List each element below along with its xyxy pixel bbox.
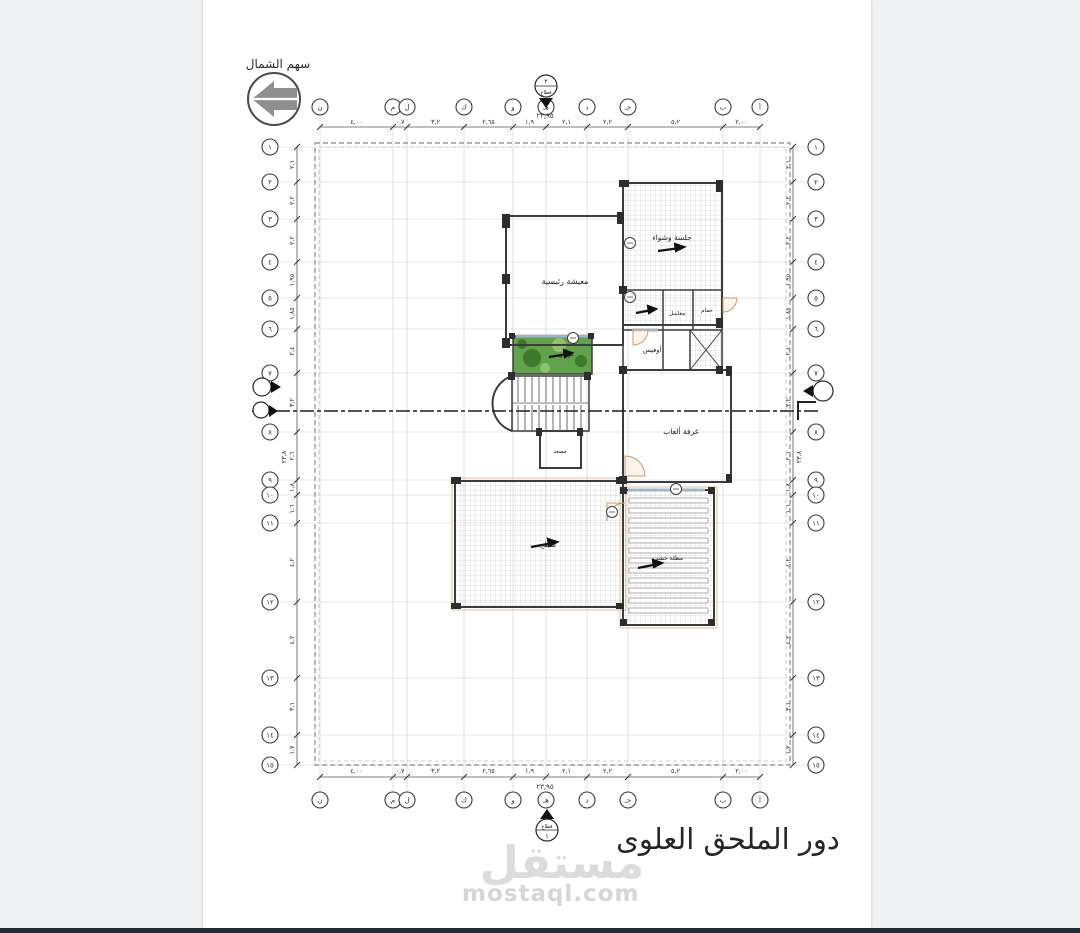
grid-bubble-label: ٦: [268, 326, 272, 334]
grid-bubble-label: ١٢: [266, 599, 274, 607]
grid-bubble-label: ك: [461, 104, 467, 112]
dim-text: ٠,٧: [395, 767, 405, 775]
dim-text: ٢,١: [562, 118, 571, 126]
dim-text: ٣,٢: [288, 397, 296, 407]
terrace-garden: [513, 336, 592, 374]
dim-text: ٤,٠٠: [350, 118, 363, 126]
dim-text: ٢,٦٥: [482, 767, 495, 775]
grid-bubble-label: أ: [759, 103, 761, 112]
grid-bubble-label: ١٠: [812, 492, 820, 500]
dim-text: ٤,٢: [288, 635, 296, 645]
dim-text: ٢,٠٠: [735, 767, 748, 775]
grid-bubble-label: ك: [461, 797, 467, 805]
stair-well: [512, 376, 589, 431]
north-arrow-label: سهم الشمال: [246, 57, 310, 71]
floor-plan-svg: نن٤,٠٠٤,٠٠مم٠,٧٠,٧لل٣,٢٣,٢كك٢,٦٥٢,٦٥وو١,…: [0, 0, 1080, 933]
grid-bubble-label: ٩: [814, 477, 818, 485]
dim-text: ٢,١: [288, 160, 296, 169]
dim-text: ٢,١: [784, 160, 792, 169]
dim-text: ٥,٢: [671, 118, 681, 126]
dim-text: ٤,٢: [288, 557, 296, 567]
grid-bubble-label: ٤: [268, 259, 272, 267]
dim-text: ٢,٢: [784, 235, 792, 245]
grid-bubble-label: ٥: [268, 295, 272, 303]
dim-text: ٣,٢: [431, 767, 441, 775]
room-label-office: أوفيس: [643, 345, 661, 354]
total-dim-left: ٢٣,٨: [280, 450, 288, 463]
dim-text: ١,٧: [784, 745, 792, 755]
room-label-roof: سطح: [540, 541, 556, 549]
grid-bubble-label: هـ: [542, 797, 549, 805]
dim-text: ١,٩٥: [288, 273, 296, 286]
grid-bubble-label: ١٤: [812, 732, 820, 740]
grid-bubble-label: ن: [317, 797, 322, 805]
grid-bubble-label: ن: [317, 104, 322, 112]
dim-text: ٤,٠٠: [350, 767, 363, 775]
grid-bubble-label: ١: [814, 144, 818, 152]
grid-bubble-label: ب: [720, 797, 727, 805]
dim-text: ١,٧: [288, 745, 296, 755]
dim-text: ٢,١: [562, 767, 571, 775]
grid-bubble-label: ١٠: [266, 492, 274, 500]
section-marker-bottom: قطاع ١: [536, 809, 558, 841]
grid-bubble-label: ٧: [814, 370, 818, 378]
dim-text: ٢,٢: [603, 767, 613, 775]
grid-bubble-label: جـ: [624, 104, 631, 112]
dim-text: ١,٦: [784, 504, 792, 514]
dim-text: ١,٨٥: [784, 307, 792, 320]
grid-bubble-label: أ: [759, 796, 761, 805]
dim-text: ٢,٢: [603, 118, 613, 126]
grid-bubble-label: جـ: [624, 797, 631, 805]
grid-bubble-label: ١٣: [266, 675, 274, 683]
dim-text: ٣,٢: [431, 118, 441, 126]
grid-bubble-label: ١٢: [812, 599, 820, 607]
room-label-elevator: مصعد: [553, 449, 566, 455]
grid-bubble-label: ١: [268, 144, 272, 152]
grid-bubble-label: م: [391, 797, 395, 805]
room-label-games: غرفة ألعاب: [663, 426, 698, 436]
dim-text: ٢,٦٥: [482, 118, 495, 126]
dim-text: ٤,٢: [784, 557, 792, 567]
north-arrow: سهم الشمال: [246, 57, 310, 125]
section-top-number: ٢: [544, 78, 548, 86]
grid-bubble-label: ٨: [814, 429, 818, 437]
grid-bubble-label: ٧: [268, 370, 272, 378]
structural-grid: نن٤,٠٠٤,٠٠مم٠,٧٠,٧لل٣,٢٣,٢كك٢,٦٥٢,٦٥وو١,…: [262, 99, 824, 808]
grid-bubble-label: ٤: [814, 259, 818, 267]
room-label-pergola: مظلة خشب: [653, 555, 683, 562]
bbq-hatch: [623, 183, 722, 325]
room-label-bath: حمام: [701, 308, 713, 314]
dim-text: ٢,٦: [784, 451, 792, 461]
dim-text: ٤,٢: [784, 635, 792, 645]
section-bottom-number: ١: [545, 833, 549, 841]
grid-bubble-label: ٥: [814, 295, 818, 303]
dim-text: ٢,٢: [288, 195, 296, 205]
grid-bubble-label: ٨: [268, 429, 272, 437]
room-label-living: معيشة رئيسية: [542, 277, 589, 286]
dim-text: ٢,٠٠: [735, 118, 748, 126]
grid-bubble-label: د: [585, 104, 588, 112]
section-top-word: قطاع: [541, 90, 553, 96]
section-marker-top: ٢ قطاع: [535, 75, 557, 108]
grid-bubble-label: ٣: [814, 216, 818, 224]
dim-text: ٥,٢: [671, 767, 681, 775]
grid-bubble-label: ٩: [268, 477, 272, 485]
dim-text: ١,٩٥: [784, 273, 792, 286]
total-dim-bottom: ٢٣,٩٥: [536, 783, 554, 791]
dim-text: ٠,٧: [395, 118, 405, 126]
dim-text: ٢,٤: [288, 346, 296, 355]
grid-bubble-label: د: [585, 797, 588, 805]
dim-text: ٢,٢: [784, 195, 792, 205]
grid-bubble-label: ٢: [814, 179, 818, 187]
grid-bubble-label: و: [510, 797, 514, 805]
grid-bubble-label: ل: [404, 797, 409, 805]
grid-bubble-label: ٣: [268, 216, 272, 224]
grid-bubble-label: ١٥: [266, 762, 274, 770]
grid-bubble-label: ١٥: [812, 762, 820, 770]
room-label-bbq: جلسة وشواء: [652, 233, 692, 242]
dim-text: ٢,٢: [288, 235, 296, 245]
section-bottom-word: قطاع: [542, 824, 554, 830]
dim-text: ١,٨٥: [288, 307, 296, 320]
grid-bubble-label: و: [510, 104, 514, 112]
dim-text: ١,٩: [525, 118, 535, 126]
stair-curved-wall: [493, 376, 513, 431]
grid-bubble-label: ٢: [268, 179, 272, 187]
room-label-terrace: تراس: [558, 350, 573, 358]
grid-bubble-label: ١١: [266, 520, 274, 528]
grid-bubble-label: ١١: [812, 520, 820, 528]
total-dim-right: ٢٣,٨: [795, 450, 803, 463]
grid-bubble-label: ٦: [814, 326, 818, 334]
bottom-bar: [0, 928, 1080, 933]
grid-bubble-label: ل: [404, 104, 409, 112]
room-label-sinks: مغاسل: [669, 311, 685, 317]
dim-text: ٢,٤: [784, 346, 792, 355]
stair-treads: [512, 376, 589, 431]
dim-text: ١,٨: [288, 482, 296, 492]
dim-text: ١,٦: [288, 504, 296, 514]
grid-bubble-label: ١٤: [266, 732, 274, 740]
dim-text: ٣,٢: [784, 397, 792, 407]
section-line: [252, 378, 833, 420]
grid-bubble-label: م: [391, 104, 395, 112]
grid-bubble-label: ب: [720, 104, 727, 112]
total-dim-top: ٢٣,٩٥: [536, 112, 554, 120]
grid-bubble-label: ١٣: [812, 675, 820, 683]
dim-text: ٢,٦: [288, 451, 296, 461]
dim-text: ١,٩: [525, 767, 535, 775]
drawing-title: دور الملحق العلوى: [592, 822, 864, 856]
dim-text: ٣,١: [784, 702, 792, 711]
dim-text: ١,٨: [784, 482, 792, 492]
dim-text: ٣,١: [288, 702, 296, 711]
screenshot-stage: نن٤,٠٠٤,٠٠مم٠,٧٠,٧لل٣,٢٣,٢كك٢,٦٥٢,٦٥وو١,…: [0, 0, 1080, 933]
